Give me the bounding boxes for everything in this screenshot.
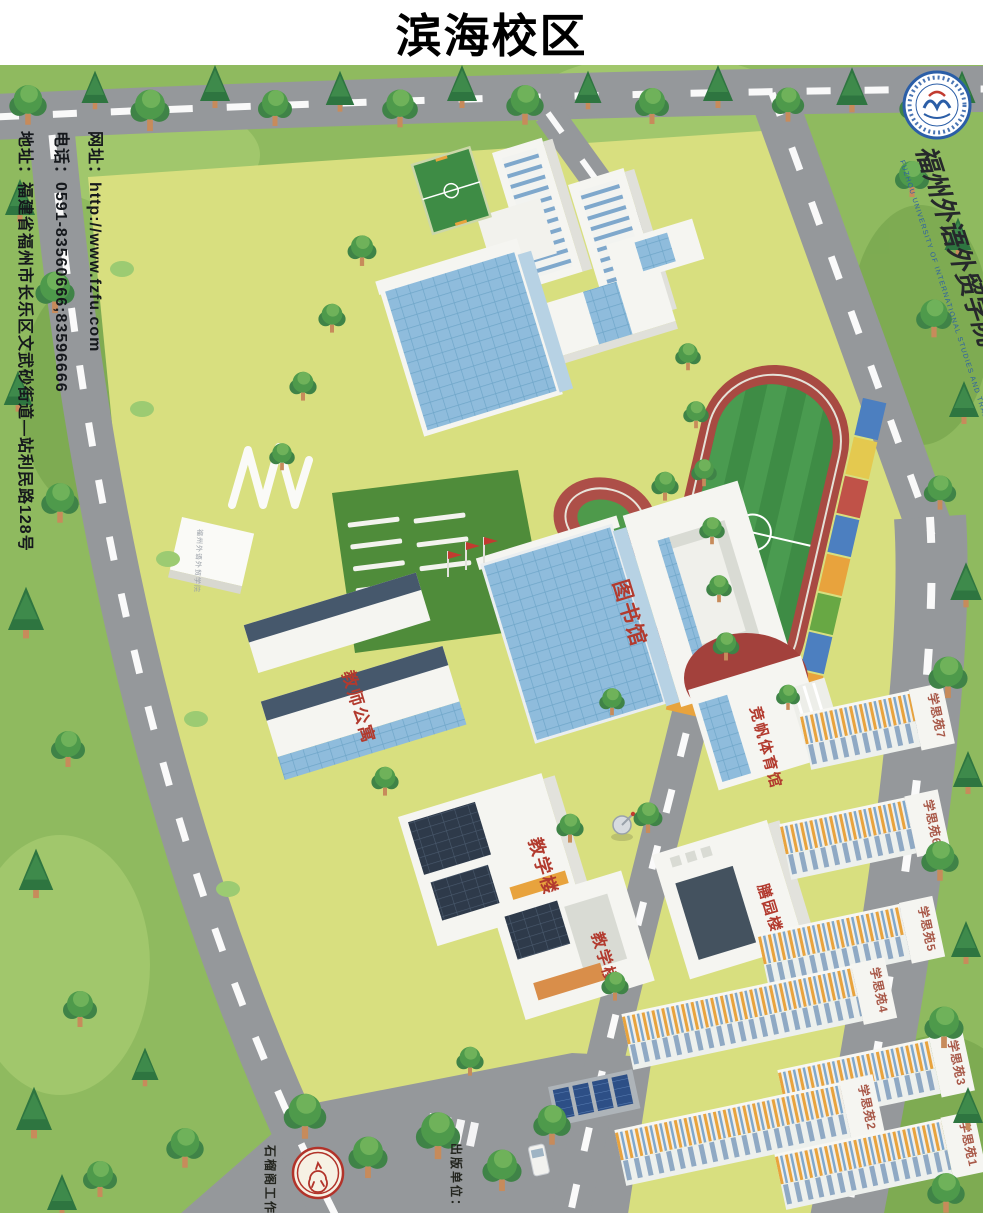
pomegranate-stamp-icon xyxy=(293,1148,343,1198)
contact-phone: 电话：0591-83560666;83596666 xyxy=(52,131,71,393)
university-logo xyxy=(904,72,970,138)
campus-map-poster: 滨海校区 xyxy=(0,0,983,1213)
contact-address: 地址：福建省福州市长乐区文武砂街道—站利民路128号 xyxy=(16,131,35,552)
campus-map-illustration: 福州外语外贸学院 xyxy=(0,65,983,1213)
page-title: 滨海校区 xyxy=(0,0,983,65)
publisher-credit: 出版单位： xyxy=(449,1143,464,1213)
contact-website: 网址：http://www.fzfu.com xyxy=(86,131,105,352)
studio-credit: 石榴阁工作室 xyxy=(263,1144,278,1213)
campus-map: 福州外语外贸学院 xyxy=(0,65,983,1213)
